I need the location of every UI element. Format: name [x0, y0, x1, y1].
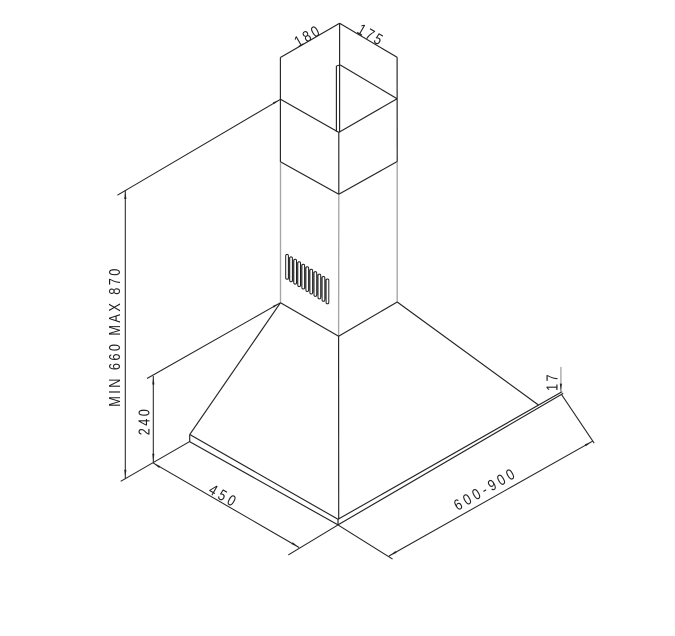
svg-text:240: 240 — [136, 407, 153, 436]
svg-text:17: 17 — [545, 372, 562, 391]
svg-text:MIN 660 MAX 870: MIN 660 MAX 870 — [107, 266, 124, 407]
